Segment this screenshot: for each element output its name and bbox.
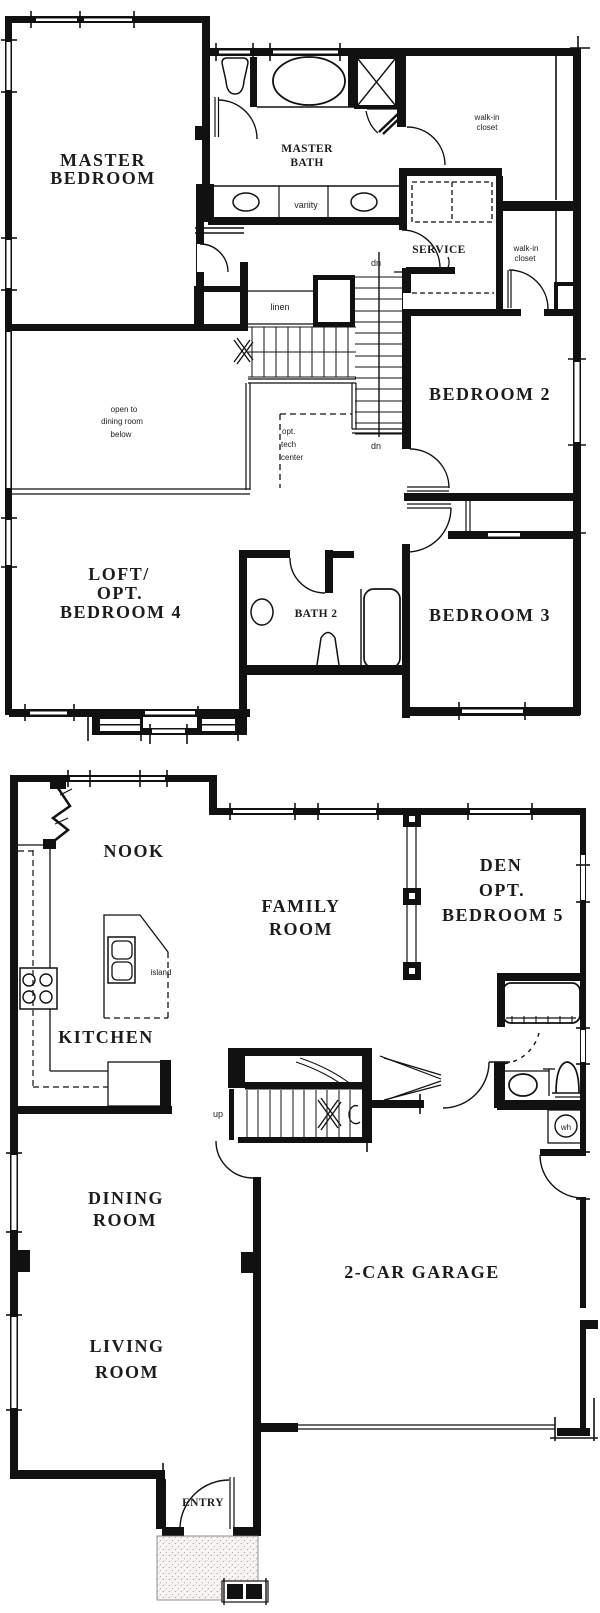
svg-text:LOFT/: LOFT/ [88, 564, 150, 584]
svg-text:BEDROOM 4: BEDROOM 4 [60, 602, 182, 622]
svg-text:2-CAR GARAGE: 2-CAR GARAGE [344, 1262, 500, 1282]
svg-text:dn: dn [371, 441, 381, 451]
svg-text:OPT.: OPT. [97, 583, 143, 603]
svg-text:LIVING: LIVING [89, 1336, 164, 1356]
svg-text:MASTER: MASTER [281, 143, 333, 155]
svg-text:FAMILY: FAMILY [261, 896, 340, 916]
svg-text:SERVICE: SERVICE [412, 244, 466, 256]
svg-text:DINING: DINING [88, 1188, 164, 1208]
svg-text:ROOM: ROOM [95, 1362, 159, 1382]
svg-text:closet: closet [477, 123, 499, 132]
svg-text:BEDROOM 5: BEDROOM 5 [442, 905, 564, 925]
svg-text:dining room: dining room [101, 417, 143, 426]
svg-text:island: island [151, 968, 172, 977]
svg-text:walk-in: walk-in [513, 244, 539, 253]
svg-text:closet: closet [515, 254, 537, 263]
svg-text:NOOK: NOOK [103, 841, 164, 861]
svg-text:linen: linen [270, 302, 289, 312]
svg-text:below: below [111, 430, 132, 439]
svg-text:MASTER: MASTER [60, 150, 146, 170]
svg-text:KITCHEN: KITCHEN [58, 1027, 154, 1047]
svg-text:BATH 2: BATH 2 [295, 608, 338, 620]
svg-text:tech: tech [281, 440, 296, 449]
svg-text:ROOM: ROOM [93, 1210, 157, 1230]
svg-text:BEDROOM: BEDROOM [50, 168, 156, 188]
svg-text:center: center [281, 453, 304, 462]
svg-text:wh: wh [560, 1123, 571, 1132]
svg-text:OPT.: OPT. [479, 880, 525, 900]
svg-text:BEDROOM 2: BEDROOM 2 [429, 384, 551, 404]
svg-text:walk-in: walk-in [474, 113, 500, 122]
svg-text:up: up [213, 1109, 223, 1119]
svg-text:ENTRY: ENTRY [182, 1497, 224, 1509]
svg-text:vanity: vanity [294, 200, 318, 210]
svg-text:open to: open to [111, 405, 138, 414]
svg-text:ROOM: ROOM [269, 919, 333, 939]
svg-text:BATH: BATH [290, 157, 323, 169]
svg-text:opt.: opt. [282, 427, 295, 436]
svg-text:DEN: DEN [480, 855, 523, 875]
svg-text:dn: dn [371, 258, 381, 268]
svg-text:BEDROOM 3: BEDROOM 3 [429, 605, 551, 625]
